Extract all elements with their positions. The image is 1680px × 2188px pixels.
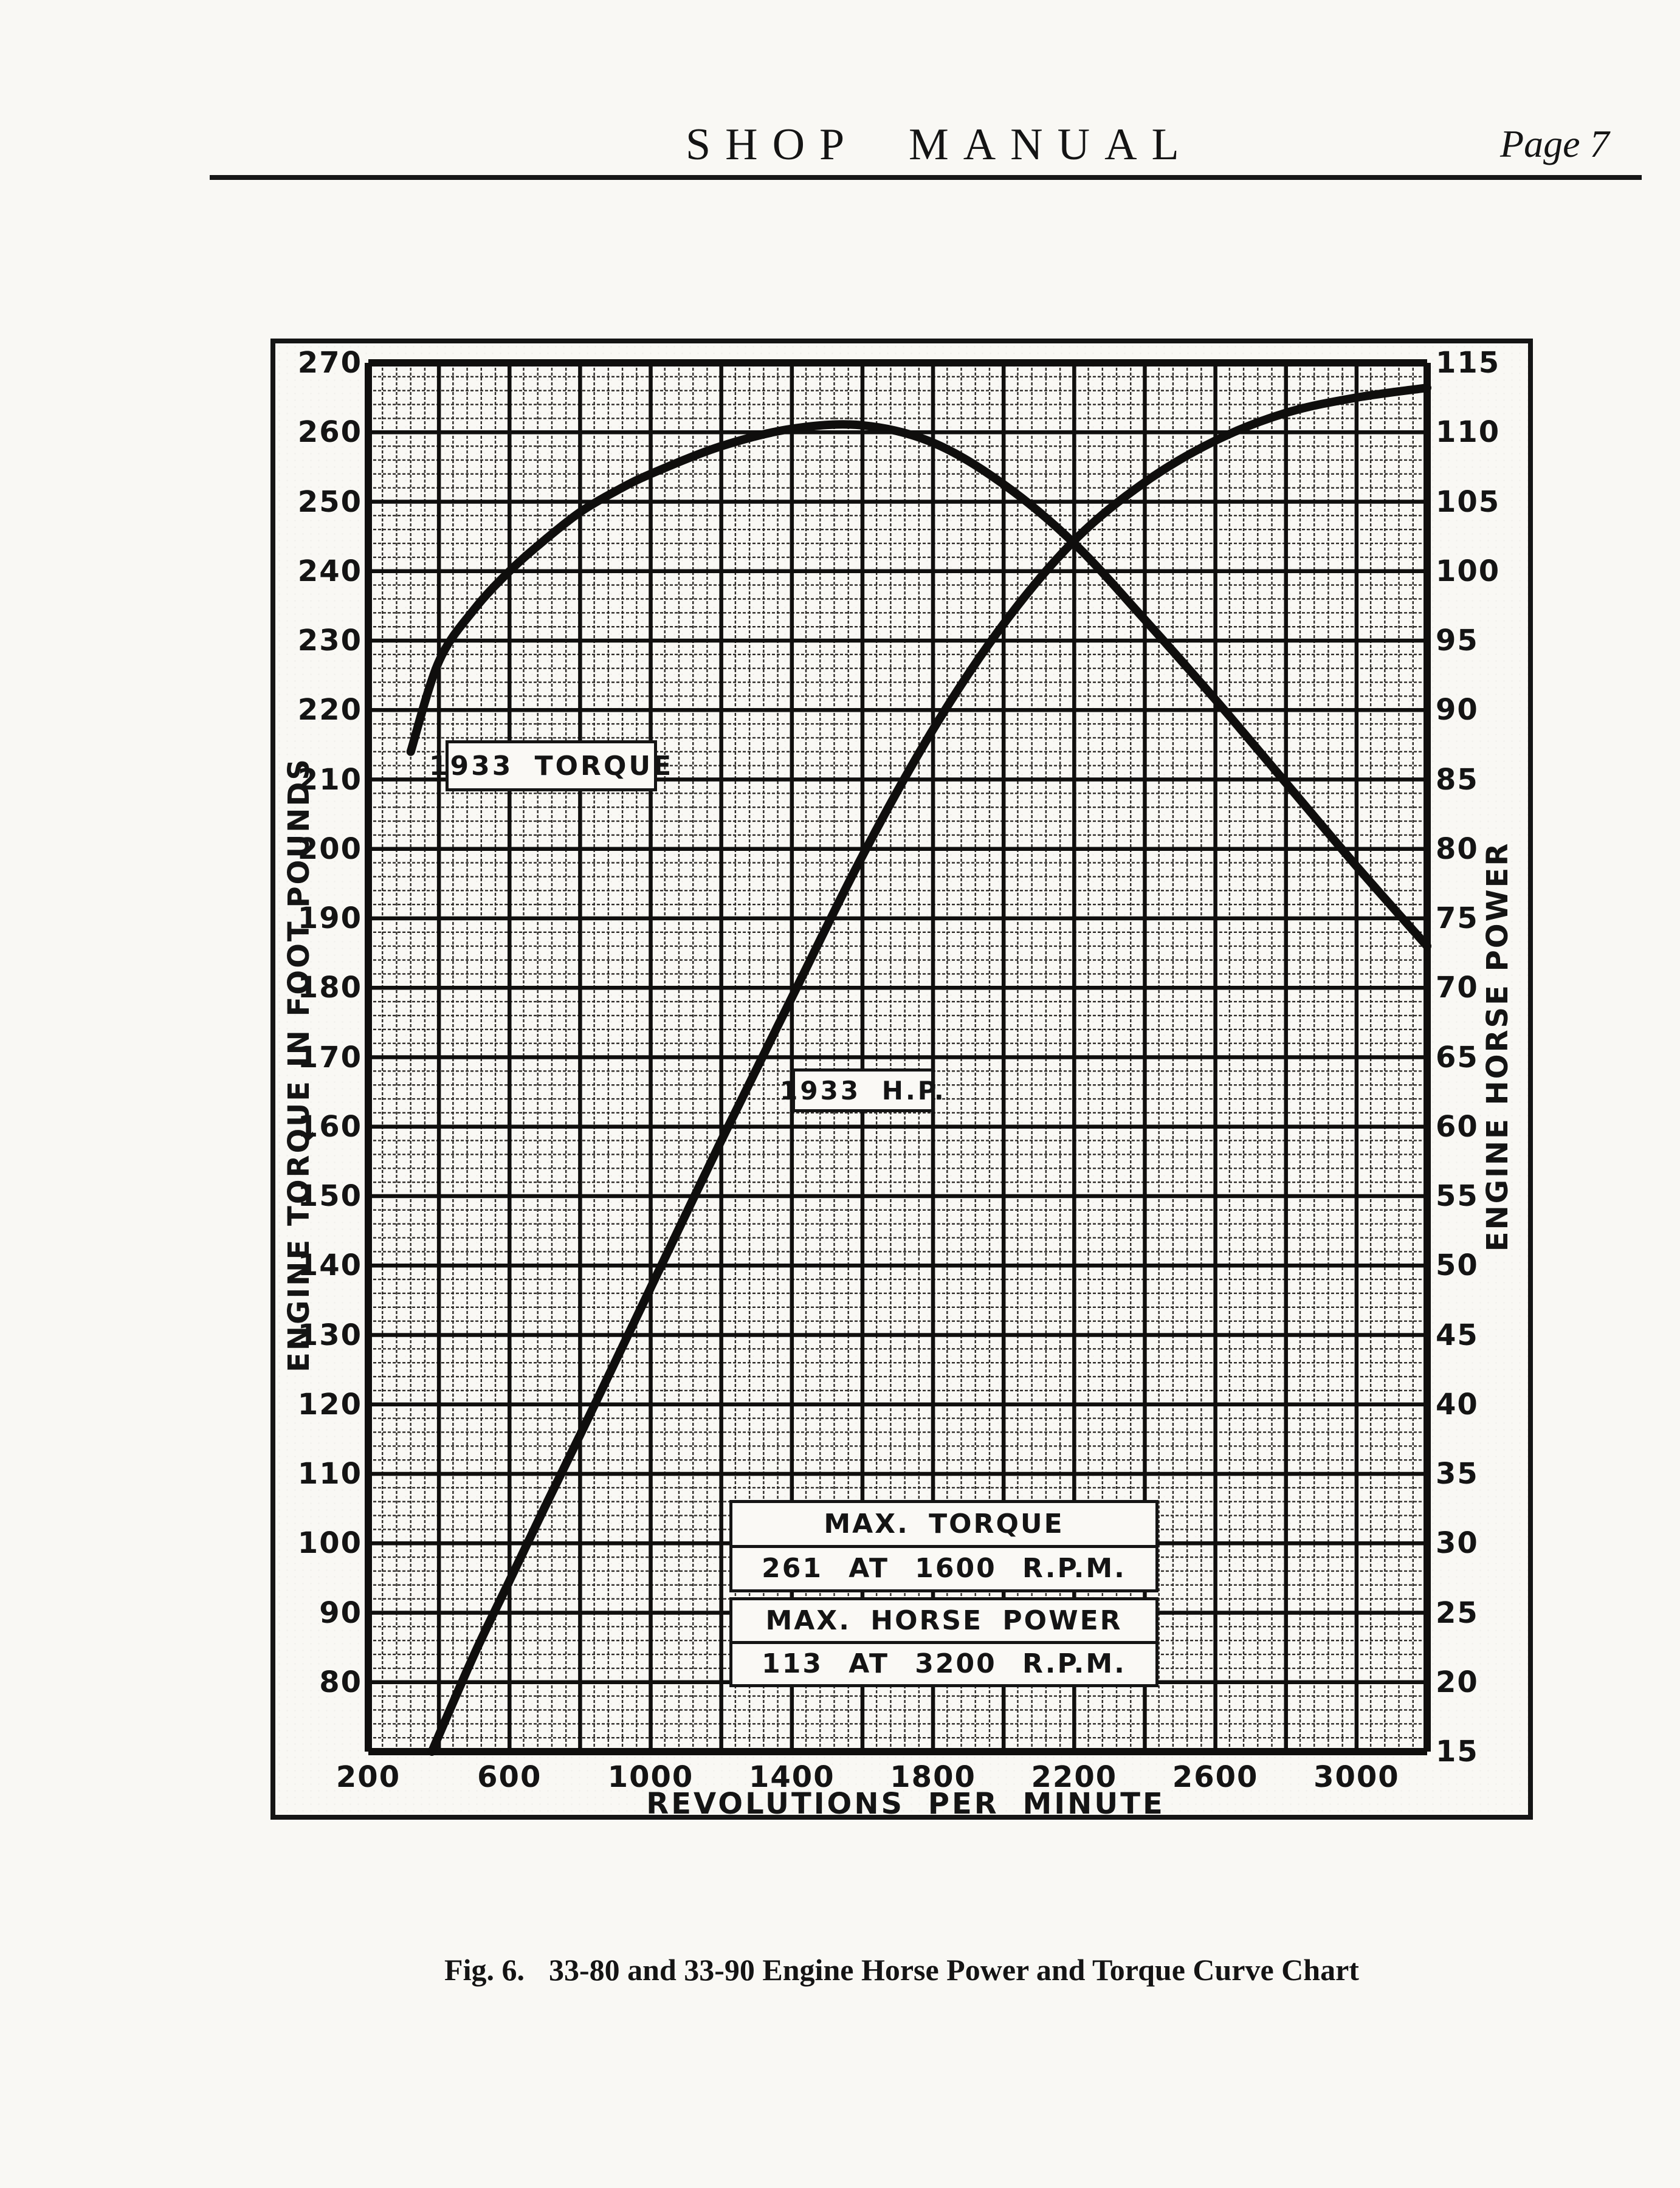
right-axis-tick: 100 bbox=[1436, 553, 1533, 590]
right-axis-tick: 40 bbox=[1436, 1386, 1533, 1423]
left-axis-tick: 140 bbox=[271, 1247, 362, 1284]
left-axis-tick: 150 bbox=[271, 1178, 362, 1214]
left-axis-tick: 220 bbox=[271, 692, 362, 728]
page-number: Page 7 bbox=[1500, 122, 1609, 167]
max-horse-power-value: 113 AT 3200 R.P.M. bbox=[732, 1644, 1155, 1685]
left-axis-tick: 240 bbox=[271, 553, 362, 590]
figure-caption-text: 33-80 and 33-90 Engine Horse Power and T… bbox=[549, 1953, 1359, 1987]
left-axis-tick: 190 bbox=[271, 900, 362, 937]
x-axis-tick: 2600 bbox=[1164, 1759, 1267, 1795]
right-axis-tick: 90 bbox=[1436, 692, 1533, 728]
left-axis-tick: 120 bbox=[271, 1386, 362, 1423]
right-axis-tick: 70 bbox=[1436, 969, 1533, 1006]
left-axis-tick: 130 bbox=[271, 1317, 362, 1354]
left-axis-tick: 90 bbox=[271, 1595, 362, 1631]
right-axis-tick: 45 bbox=[1436, 1317, 1533, 1354]
right-axis-tick: 115 bbox=[1436, 345, 1533, 381]
manual-page: SHOP MANUAL Page 7 ENGINE TORQUE IN FOOT… bbox=[0, 0, 1680, 2188]
x-axis-tick: 2200 bbox=[1022, 1759, 1126, 1795]
right-axis-tick: 35 bbox=[1436, 1456, 1533, 1492]
right-axis-tick: 15 bbox=[1436, 1733, 1533, 1770]
right-axis-tick: 95 bbox=[1436, 622, 1533, 659]
page-title: SHOP MANUAL bbox=[686, 119, 1194, 171]
torque-curve-label: 1933 TORQUE bbox=[446, 740, 657, 791]
right-axis-tick: 55 bbox=[1436, 1178, 1533, 1214]
left-axis-tick: 100 bbox=[271, 1525, 362, 1561]
max-horse-power-callout: MAX. HORSE POWER 113 AT 3200 R.P.M. bbox=[729, 1597, 1158, 1687]
left-axis-tick: 160 bbox=[271, 1109, 362, 1145]
right-axis-tick: 75 bbox=[1436, 900, 1533, 937]
right-axis-tick: 80 bbox=[1436, 831, 1533, 867]
right-axis-tick: 20 bbox=[1436, 1664, 1533, 1701]
left-axis-tick: 270 bbox=[271, 345, 362, 381]
right-axis-tick: 60 bbox=[1436, 1109, 1533, 1145]
right-axis-tick: 65 bbox=[1436, 1039, 1533, 1076]
x-axis-tick: 1400 bbox=[740, 1759, 844, 1795]
right-axis-tick: 25 bbox=[1436, 1595, 1533, 1631]
x-axis-tick: 200 bbox=[317, 1759, 420, 1795]
left-axis-tick: 210 bbox=[271, 762, 362, 798]
x-axis-tick: 1000 bbox=[599, 1759, 703, 1795]
left-axis-tick: 250 bbox=[271, 484, 362, 520]
max-torque-title: MAX. TORQUE bbox=[732, 1503, 1155, 1548]
right-axis-tick: 85 bbox=[1436, 762, 1533, 798]
x-axis-tick: 1800 bbox=[881, 1759, 985, 1795]
figure-caption: Fig. 6.33-80 and 33-90 Engine Horse Powe… bbox=[270, 1952, 1533, 1987]
x-axis-tick: 3000 bbox=[1305, 1759, 1408, 1795]
right-axis-tick: 105 bbox=[1436, 484, 1533, 520]
max-torque-callout: MAX. TORQUE 261 AT 1600 R.P.M. bbox=[729, 1500, 1158, 1592]
left-axis-tick: 200 bbox=[271, 831, 362, 867]
left-axis-tick: 260 bbox=[271, 414, 362, 450]
left-axis-tick: 170 bbox=[271, 1039, 362, 1076]
left-axis-tick: 180 bbox=[271, 969, 362, 1006]
right-axis-tick: 110 bbox=[1436, 414, 1533, 450]
right-axis-tick: 50 bbox=[1436, 1247, 1533, 1284]
hp-curve-label: 1933 H.P. bbox=[792, 1068, 934, 1112]
max-torque-value: 261 AT 1600 R.P.M. bbox=[732, 1548, 1155, 1590]
max-horse-power-title: MAX. HORSE POWER bbox=[732, 1600, 1155, 1644]
left-axis-tick: 110 bbox=[271, 1456, 362, 1492]
right-axis-tick: 30 bbox=[1436, 1525, 1533, 1561]
left-axis-tick: 230 bbox=[271, 622, 362, 659]
left-axis-tick: 80 bbox=[271, 1664, 362, 1701]
header-rule bbox=[210, 175, 1642, 180]
x-axis-tick: 600 bbox=[458, 1759, 561, 1795]
figure-caption-number: Fig. 6. bbox=[444, 1953, 525, 1987]
